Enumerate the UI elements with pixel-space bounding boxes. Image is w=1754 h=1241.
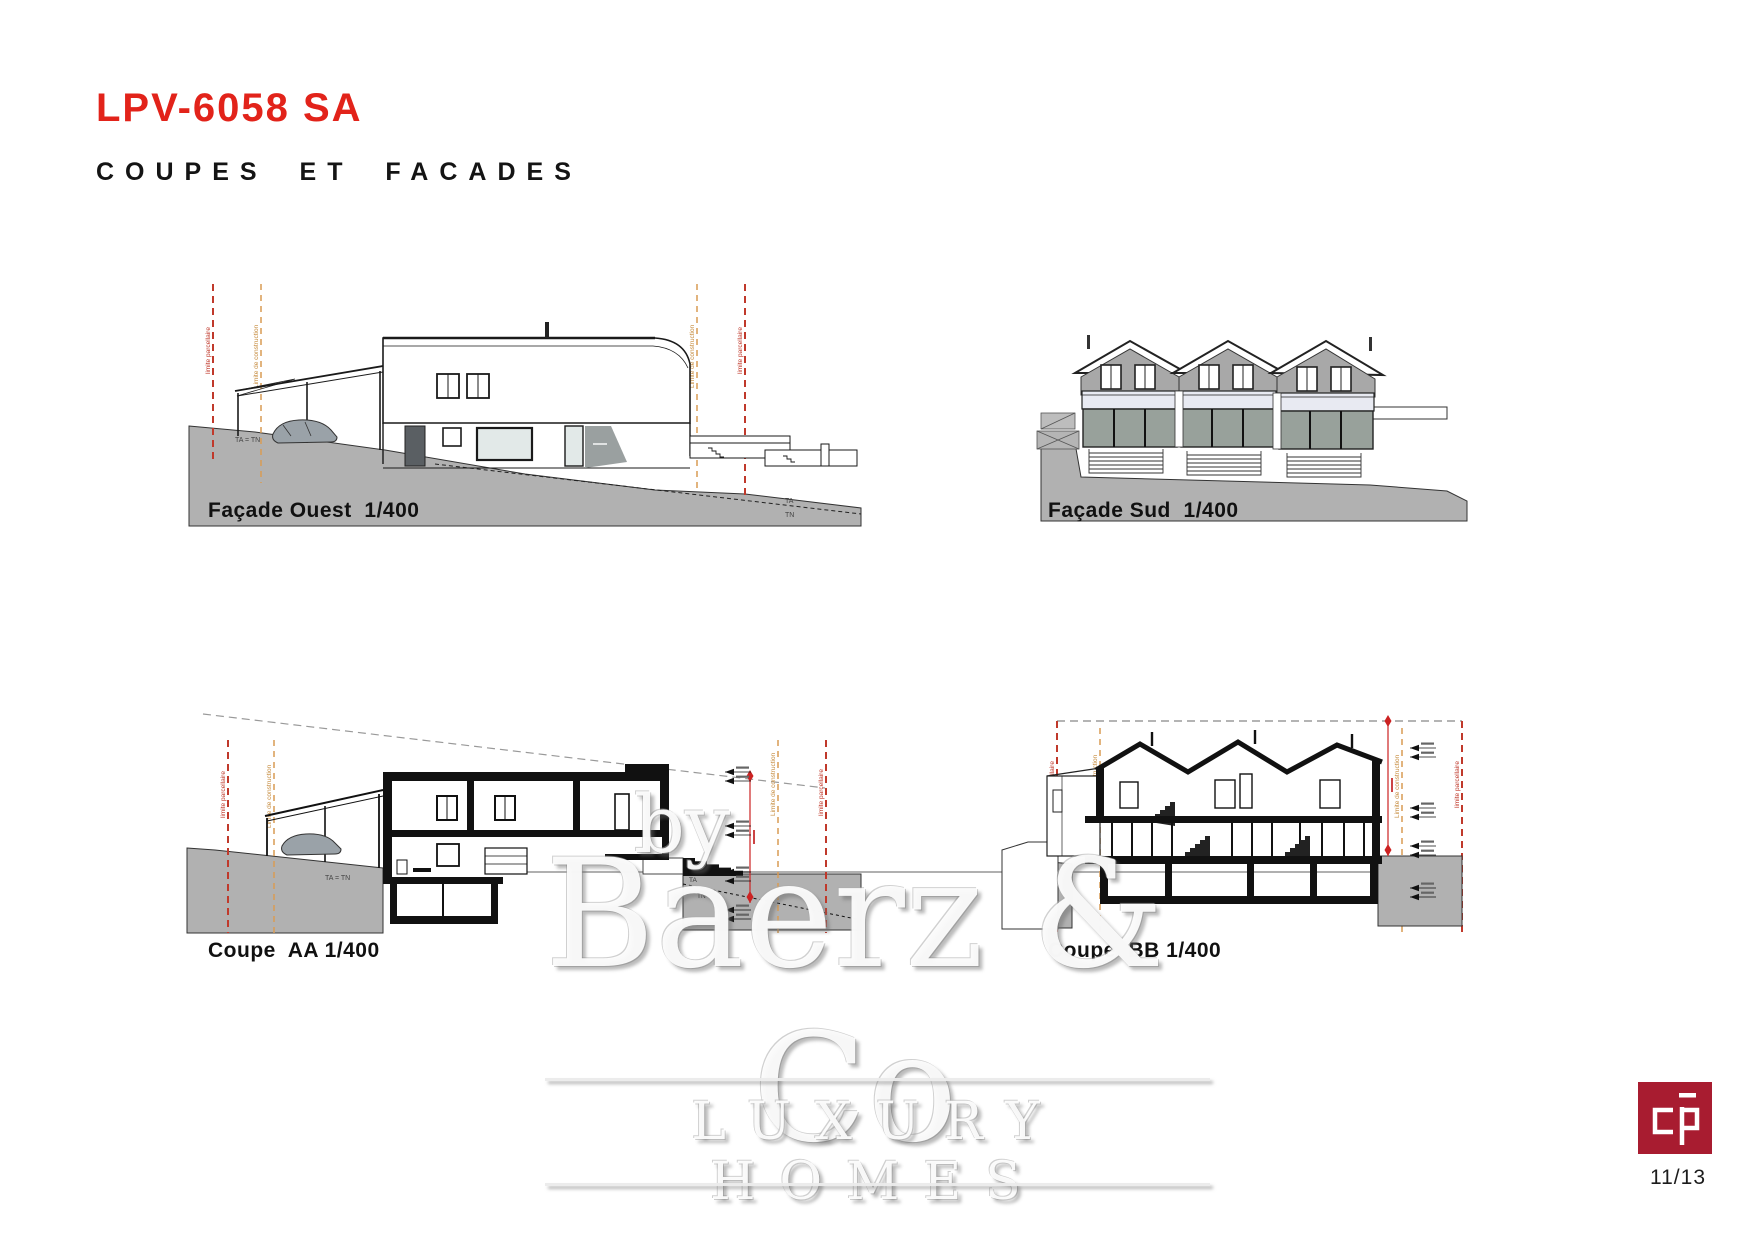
ta-tn-note: TA = TN xyxy=(235,437,260,444)
unit-3 xyxy=(1271,337,1383,477)
car xyxy=(273,420,337,443)
unit-1 xyxy=(1075,335,1187,473)
terrain-left xyxy=(187,848,383,933)
side-terrace xyxy=(1373,407,1447,419)
car xyxy=(282,834,341,855)
plan-sheet: LPV-6058 SA COUPES ET FACADES TA = TN TA… xyxy=(0,0,1754,1241)
limit-construction-label: Limite de construction xyxy=(770,752,777,816)
house xyxy=(383,322,690,468)
drawing-facade-ouest: TA = TN TA TN limite parcellaire Limite … xyxy=(185,278,865,530)
drawing-coupe-bb: limite parcellaire Limite de constructio… xyxy=(1000,698,1475,970)
ta-tn-note: TA = TN xyxy=(325,875,350,882)
drawing-facade-sud xyxy=(1035,295,1475,530)
brand-logo xyxy=(1638,1082,1712,1154)
watermark-rule-top xyxy=(545,1078,1210,1081)
ta-note: TA xyxy=(785,498,794,505)
logo-cp-icon xyxy=(1638,1082,1712,1154)
dimension-line xyxy=(1385,715,1394,856)
limit-parcel-label: limite parcellaire xyxy=(737,327,744,374)
limit-parcel-label: limite parcellaire xyxy=(1454,761,1461,808)
label-coupe-bb: Coupe BB 1/400 xyxy=(1048,939,1221,963)
limit-construction-label: Limite de construction xyxy=(253,324,260,388)
label-facade-sud: Façade Sud 1/400 xyxy=(1048,499,1239,523)
limit-parcel-label: limite parcellaire xyxy=(818,769,825,816)
carport xyxy=(265,790,383,868)
limit-parcel-label: limite parcellaire xyxy=(205,327,212,374)
terrace-ledge xyxy=(643,858,683,874)
limit-construction-label: Limite de construction xyxy=(1394,754,1401,818)
ta-note: TA xyxy=(689,877,697,884)
limit-parcel-label: limite parcellaire xyxy=(220,771,227,818)
building-section xyxy=(383,764,669,924)
watermark-tagline: LUXURY HOMES xyxy=(545,1092,1210,1212)
tn-note: TN xyxy=(697,893,706,900)
drawing-coupe-aa: TA = TN TA TN limite parcellaire Limite … xyxy=(185,698,865,970)
unit-2 xyxy=(1173,341,1285,475)
terraces xyxy=(690,436,857,466)
page-number: 11/13 xyxy=(1650,1166,1706,1190)
watermark-rule-bottom xyxy=(545,1183,1210,1186)
page-subtitle: COUPES ET FACADES xyxy=(96,158,582,187)
page-title: LPV-6058 SA xyxy=(96,86,363,131)
house-units xyxy=(1075,335,1383,477)
label-facade-ouest: Façade Ouest 1/400 xyxy=(208,499,419,523)
tn-note: TN xyxy=(785,512,794,519)
label-coupe-aa: Coupe AA 1/400 xyxy=(208,939,380,963)
retaining-wall xyxy=(1037,413,1079,449)
terrain-right xyxy=(1378,856,1462,926)
